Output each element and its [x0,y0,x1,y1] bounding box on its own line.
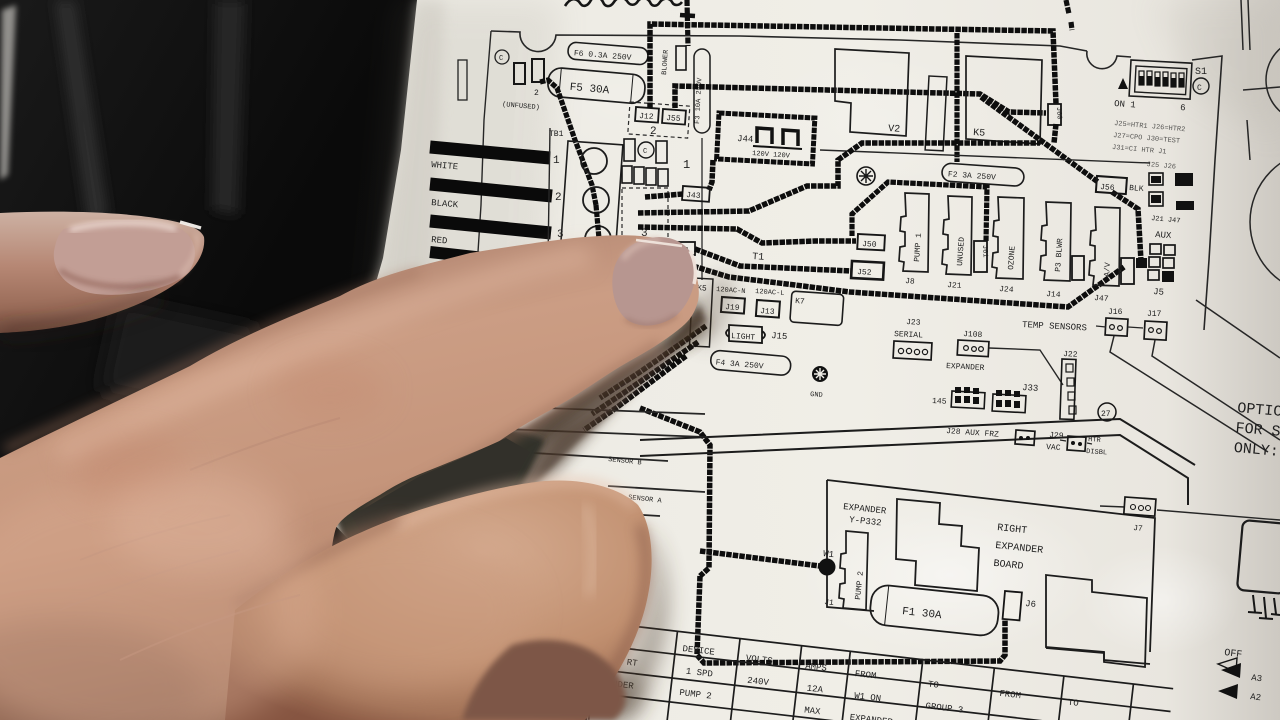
svg-text:J55: J55 [666,114,681,124]
svg-text:RED: RED [431,235,448,246]
svg-text:AUX: AUX [1155,230,1172,241]
svg-text:LIGHT: LIGHT [731,332,756,343]
svg-text:145: 145 [932,397,947,407]
svg-text:BLK: BLK [1129,184,1144,194]
svg-text:C: C [643,148,647,156]
svg-text:T1: T1 [752,252,765,264]
svg-text:J108: J108 [963,330,983,340]
svg-text:VAC: VAC [1046,443,1061,453]
svg-text:TO: TO [927,679,939,690]
svg-text:C: C [1197,84,1202,93]
svg-text:K7: K7 [795,297,805,307]
svg-text:J17: J17 [1147,310,1162,319]
svg-text:12A: 12A [806,684,824,696]
svg-text:J6: J6 [1025,599,1037,610]
svg-text:J43: J43 [686,191,701,201]
svg-text:J33: J33 [1022,383,1039,394]
svg-text:V2: V2 [888,124,901,136]
svg-text:J56: J56 [1100,183,1115,193]
svg-text:OZONE: OZONE [1007,245,1018,270]
svg-text:J50: J50 [862,240,877,250]
svg-text:6: 6 [1180,103,1186,113]
svg-text:J52: J52 [857,268,872,278]
svg-text:J24: J24 [999,285,1014,295]
svg-text:2: 2 [555,192,562,204]
svg-text:J12: J12 [639,112,654,122]
svg-text:J21: J21 [947,281,962,291]
svg-text:1: 1 [553,155,560,167]
svg-text:2: 2 [534,89,539,98]
svg-text:3: 3 [557,229,564,241]
svg-text:TB1: TB1 [549,130,564,139]
svg-text:K5: K5 [973,128,986,140]
svg-text:A/V: A/V [1103,262,1113,277]
svg-text:A2: A2 [1250,692,1262,703]
svg-text:GND: GND [810,391,823,400]
svg-text:J1: J1 [824,598,835,608]
svg-text:J13: J13 [760,307,775,317]
svg-text:J44: J44 [737,134,754,145]
svg-text:C: C [499,55,503,63]
svg-text:1: 1 [683,158,690,172]
svg-text:J22: J22 [1063,350,1078,360]
svg-text:27: 27 [1101,410,1111,419]
svg-text:A3: A3 [1251,673,1263,684]
svg-text:DISBL: DISBL [1086,448,1108,457]
svg-text:J16: J16 [1108,308,1123,317]
svg-text:SERIAL: SERIAL [894,330,923,341]
svg-text:J29: J29 [1049,431,1064,441]
svg-text:W1: W1 [823,549,835,560]
svg-text:2: 2 [650,126,657,138]
svg-text:J8: J8 [905,277,915,287]
svg-text:J7: J7 [1133,524,1144,534]
svg-text:J23: J23 [906,318,921,328]
svg-text:J5: J5 [1153,287,1164,298]
svg-text:J60: J60 [1054,107,1063,120]
svg-text:S1: S1 [1195,67,1207,78]
svg-text:J14: J14 [1046,290,1061,300]
svg-text:J15: J15 [771,331,788,342]
svg-text:J47: J47 [1094,294,1109,304]
svg-text:MAX: MAX [804,705,822,717]
svg-text:TO: TO [1067,698,1079,709]
svg-text:J61: J61 [980,245,989,258]
svg-text:ON 1: ON 1 [1114,99,1136,110]
